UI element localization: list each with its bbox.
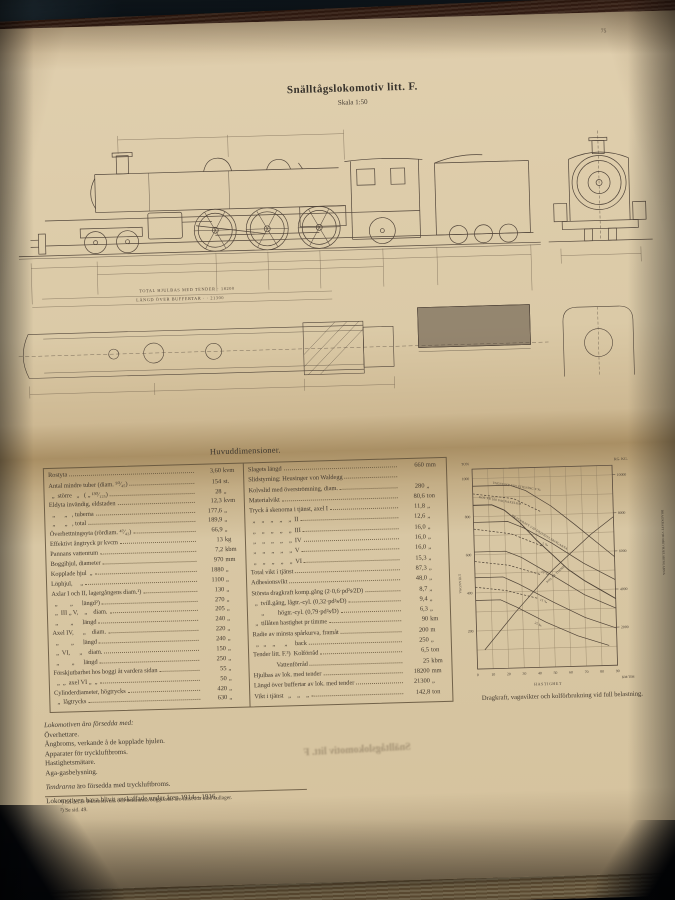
svg-text:20: 20	[507, 672, 511, 676]
dimension-total-wheelbase: TOTAL HJULBAS MED TENDER · 18200	[139, 286, 235, 294]
svg-text:1000: 1000	[462, 477, 470, 481]
svg-text:0: 0	[477, 673, 479, 677]
dimensions-table: Rostyta3,60kvmAntal mindre tuber (diam. …	[43, 457, 454, 713]
svg-text:TON: TON	[461, 462, 469, 466]
svg-text:80: 80	[600, 670, 604, 674]
chart-svg: 0102030405060708090200400600800100020004…	[452, 448, 671, 704]
svg-text:KM/TIM: KM/TIM	[622, 675, 635, 679]
locomotive-plan-view-drawing	[2, 289, 659, 403]
dim-table-left: Rostyta3,60kvmAntal mindre tuber (diam. …	[44, 464, 251, 712]
svg-text:70: 70	[585, 670, 589, 674]
svg-text:KG. KG.: KG. KG.	[614, 457, 628, 461]
svg-text:50: 50	[554, 671, 558, 675]
svg-text:400: 400	[467, 591, 473, 595]
svg-text:800: 800	[465, 515, 471, 519]
dim-table-right: Slagets längd660mmSlidstyrning: Heusinge…	[244, 458, 453, 707]
photo-of-book-page: 75 Snälltågslokomotiv litt. F. Skala 1:5…	[0, 0, 675, 900]
locomotive-front-view	[552, 129, 647, 242]
tender-note: Tendrarna äro försedda med tryckluftbrom…	[46, 778, 217, 792]
svg-text:DRAGKRAFT VID DRIVHJULSRINGARN: DRAGKRAFT VID DRIVHJULSRINGARNA	[511, 514, 569, 552]
svg-text:6000: 6000	[619, 549, 627, 553]
equipment-list: Överhettare.Ångbroms, verkande å de kopp…	[44, 726, 216, 779]
section-heading: Huvuddimensioner.	[130, 443, 360, 458]
svg-text:10 ‰: 10 ‰	[541, 570, 550, 577]
svg-text:60: 60	[569, 670, 573, 674]
svg-text:VAGNVIKT VID STIGNING 0 ‰: VAGNVIKT VID STIGNING 0 ‰	[492, 481, 541, 492]
book-page: 75 Snälltågslokomotiv litt. F. Skala 1:5…	[0, 10, 675, 891]
svg-text:VAGNVIKT: VAGNVIKT	[458, 573, 463, 594]
svg-text:10000: 10000	[617, 473, 627, 477]
svg-text:90: 90	[616, 669, 620, 673]
locomotive-side-elevation-drawing: TOTAL HJULBAS MED TENDER · 18200 LÄNGD Ö…	[0, 101, 657, 319]
svg-text:4000: 4000	[620, 587, 628, 591]
svg-text:200: 200	[468, 629, 474, 633]
svg-text:DRAGKRAFT VID DRIVHJULSRINGARN: DRAGKRAFT VID DRIVHJULSRINGARNA	[660, 510, 666, 576]
svg-text:8000: 8000	[618, 511, 626, 515]
svg-text:HASTIGHET: HASTIGHET	[534, 681, 562, 687]
svg-text:2000: 2000	[621, 625, 629, 629]
svg-text:30: 30	[522, 672, 526, 676]
svg-text:600: 600	[466, 553, 472, 557]
ink-bleedthrough-text: Snälltågslokomotiv litt. F	[231, 742, 411, 763]
page-number: 75	[601, 28, 607, 34]
page-title: Snälltågslokomotiv litt. F.	[232, 79, 472, 98]
svg-text:40: 40	[538, 671, 542, 675]
svg-text:10: 10	[491, 673, 495, 677]
